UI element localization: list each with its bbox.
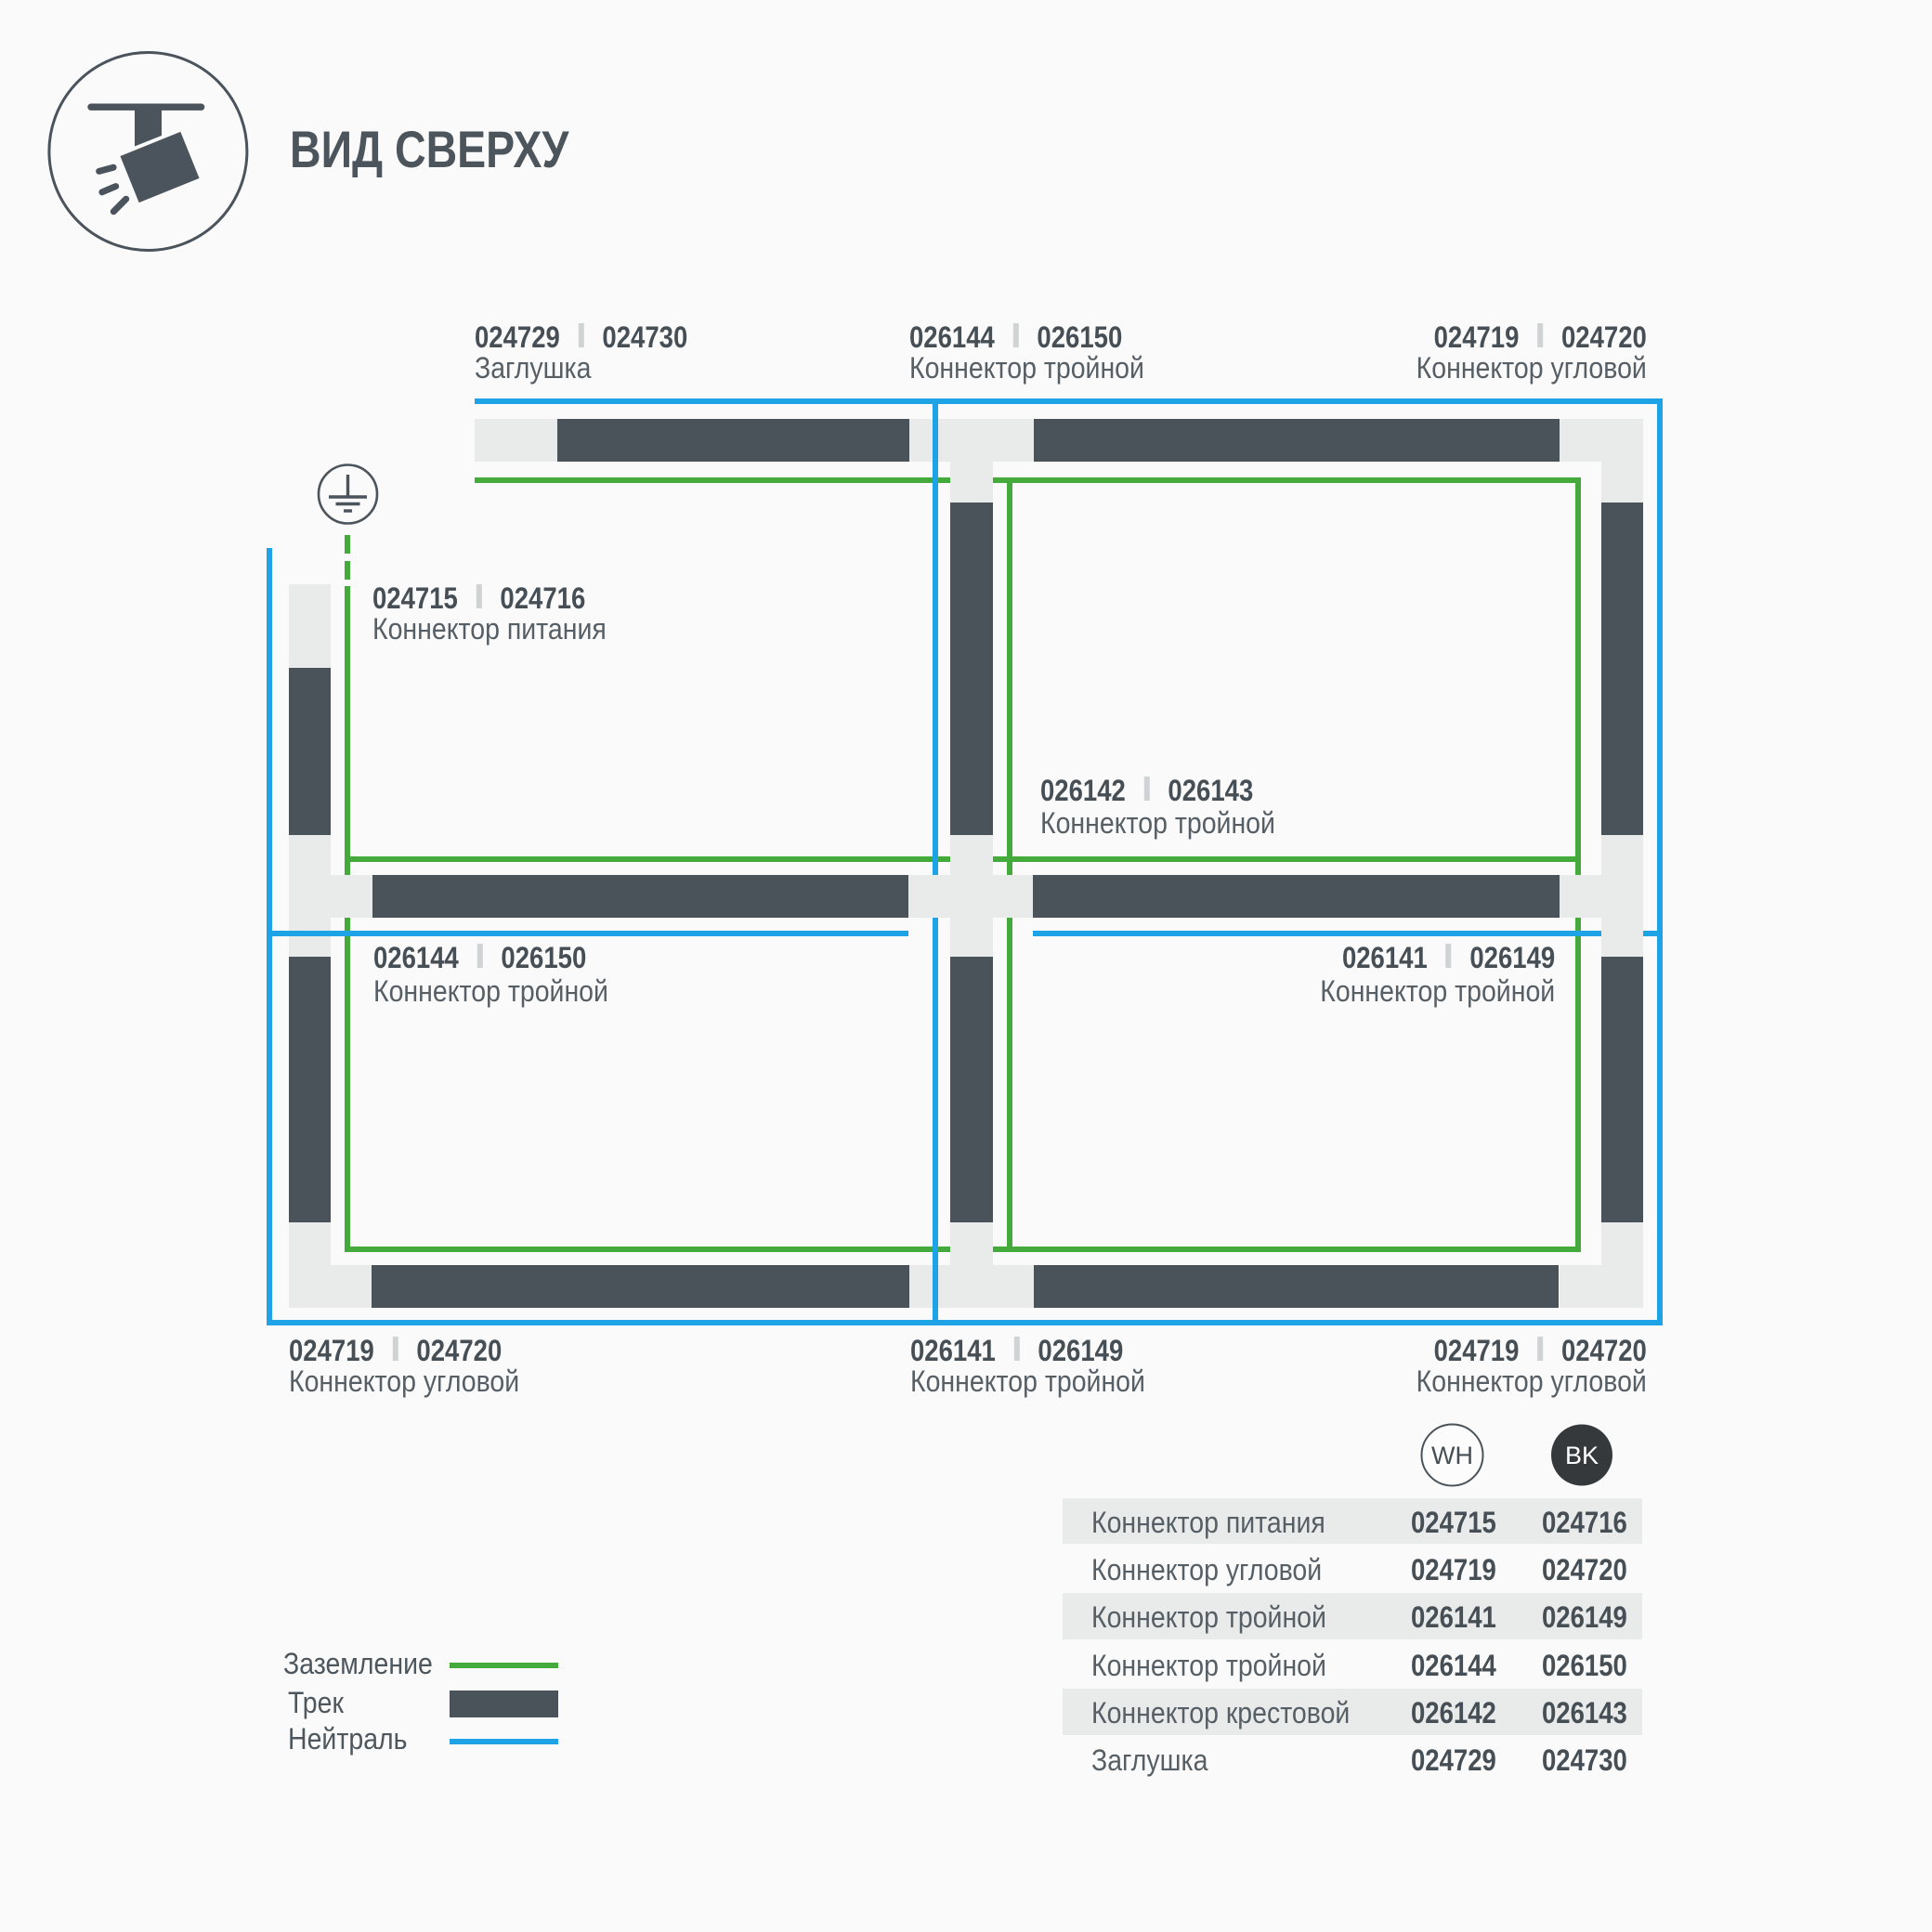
svg-text:BK: BK [1565, 1442, 1599, 1469]
svg-text:WH: WH [1431, 1442, 1473, 1469]
